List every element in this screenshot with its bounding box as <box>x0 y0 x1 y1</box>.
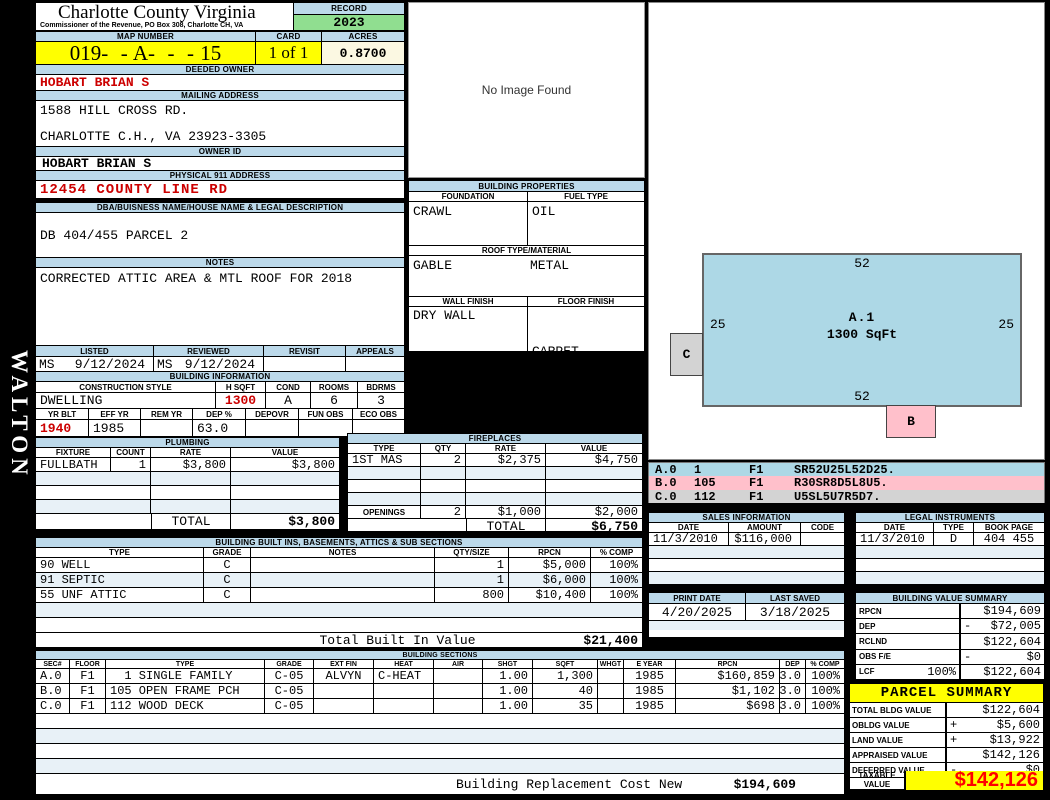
built-ins-total-row: Total Built In Value $21,400 <box>36 633 642 647</box>
sales-label: SALES INFORMATION <box>649 513 844 523</box>
sketch-dim-left: 25 <box>710 317 726 332</box>
sections-col-air: AIR <box>434 660 483 668</box>
plumbing-col-value: VALUE <box>231 448 339 457</box>
bvs-row-rpcn: RPCN $194,609 <box>856 604 1044 619</box>
sales-col-date: DATE <box>649 523 729 532</box>
legal-col-bookpage: BOOK PAGE <box>974 523 1044 532</box>
plumbing-table: PLUMBING FIXTURE COUNT RATE VALUE FULLBA… <box>35 437 340 530</box>
listed-label: LISTED <box>36 346 154 356</box>
plumbing-col-fixture: FIXTURE <box>36 448 111 457</box>
floor-finish-values: CARPET TILE HARDWOOD <box>528 307 644 351</box>
bvs-label: BUILDING VALUE SUMMARY <box>856 593 1044 604</box>
empty-row <box>649 621 844 630</box>
legal-col-type: TYPE <box>934 523 974 532</box>
sidebar-vertical-text: WALTON <box>0 335 32 495</box>
fireplaces-label: FIREPLACES <box>348 434 642 444</box>
fireplaces-total-value: $6,750 <box>546 519 642 533</box>
built-ins-col-notes: NOTES <box>251 548 435 557</box>
fireplaces-total-row: TOTAL $6,750 <box>348 519 642 533</box>
empty-row <box>36 729 844 744</box>
fireplaces-total-label: TOTAL <box>466 519 546 533</box>
fireplaces-col-type: TYPE <box>348 444 421 453</box>
built-ins-row: 90 WELL C 1 $5,000 100% <box>36 558 642 573</box>
sections-col-whgt: WHGT <box>598 660 624 668</box>
owner-id-value: HOBART BRIAN S <box>35 156 405 171</box>
legend-row-a: A.0 1 F1 SR52U25L52D25. <box>649 463 1044 476</box>
built-ins-label: BUILDING BUILT INS, BASEMENTS, ATTICS & … <box>36 538 642 548</box>
yr-blt-value: 1940 <box>36 420 89 436</box>
sales-information-table: SALES INFORMATION DATE AMOUNT CODE 11/3/… <box>648 512 845 584</box>
built-ins-row: 55 UNF ATTIC C 800 $10,400 100% <box>36 588 642 603</box>
empty-row <box>348 467 642 480</box>
building-properties-panel: BUILDING PROPERTIES FOUNDATION FUEL TYPE… <box>408 180 645 352</box>
sections-col-rpcn: RPCN <box>676 660 780 668</box>
construction-style-value: DWELLING <box>36 393 216 408</box>
eff-yr-value: 1985 <box>89 420 141 436</box>
built-ins-col-type: TYPE <box>36 548 204 557</box>
floor-finish-1: CARPET <box>532 344 644 351</box>
map-number-value: 019- - A- - - 15 <box>35 41 256 65</box>
sale-code <box>801 533 844 545</box>
legal-label: LEGAL INSTRUMENTS <box>856 513 1044 523</box>
roof-type-value: GABLE <box>409 256 528 296</box>
fireplaces-col-rate: RATE <box>466 444 546 453</box>
bdrms-value: 3 <box>358 393 404 408</box>
county-title: Charlotte County Virginia <box>36 3 293 22</box>
listed-by: MS <box>39 357 55 371</box>
revisit-cell <box>264 357 346 371</box>
sketch-dim-bottom: 52 <box>704 389 1020 404</box>
built-ins-col-qty-size: QTY/SIZE <box>435 548 509 557</box>
appeals-cell <box>346 357 404 371</box>
parcel-row-obldg: OBLDG VALUE +$5,600 <box>850 718 1043 733</box>
sketch-dim-top: 52 <box>704 256 1020 271</box>
empty-row <box>856 546 1044 559</box>
eff-yr-label: EFF YR <box>89 409 141 419</box>
fireplaces-col-value: VALUE <box>546 444 642 453</box>
dep-pct-label: DEP % <box>193 409 246 419</box>
building-section-row: A.0 F1 1 SINGLE FAMILY C-05 ALVYN C-HEAT… <box>36 669 844 684</box>
print-date-table: PRINT DATE LAST SAVED 4/20/2025 3/18/202… <box>648 592 845 638</box>
fireplaces-table: FIREPLACES TYPE QTY RATE VALUE 1ST MAS 2… <box>347 433 643 532</box>
fun-obs-label: FUN OBS <box>299 409 353 419</box>
fireplaces-row: 1ST MAS 2 $2,375 $4,750 <box>348 454 642 467</box>
sketch-section-c: C <box>670 333 703 376</box>
built-ins-col-rpcn: RPCN <box>509 548 591 557</box>
dba-value: DB 404/455 PARCEL 2 <box>35 212 405 258</box>
rem-yr-value <box>141 420 193 436</box>
building-section-row: C.0 F1 112 WOOD DECK C-05 1.00 35 1985 $… <box>36 699 844 714</box>
reviewed-label: REVIEWED <box>154 346 264 356</box>
sections-col-grade: GRADE <box>265 660 314 668</box>
sales-col-code: CODE <box>801 523 844 532</box>
built-ins-total-value: $21,400 <box>544 633 642 647</box>
empty-row <box>36 603 642 618</box>
built-ins-table: BUILDING BUILT INS, BASEMENTS, ATTICS & … <box>35 537 643 648</box>
physical-address-value: 12454 COUNTY LINE RD <box>35 180 405 199</box>
taxable-value-label: TAXABLE VALUE <box>850 771 906 790</box>
mailing-line2: CHARLOTTE C.H., VA 23923-3305 <box>40 129 400 144</box>
legal-row: 11/3/2010 D 404 455 <box>856 533 1044 546</box>
fireplaces-openings-row: OPENINGS 2 $1,000 $2,000 <box>348 506 642 519</box>
fuel-type-label: FUEL TYPE <box>528 192 644 201</box>
cond-value: A <box>266 393 311 408</box>
built-ins-col-comp: % COMP <box>591 548 642 557</box>
sections-col-sec: SEC# <box>36 660 70 668</box>
sections-col-floor: FLOOR <box>70 660 106 668</box>
empty-row <box>36 714 844 729</box>
legal-date: 11/3/2010 <box>856 533 934 545</box>
sale-date: 11/3/2010 <box>649 533 729 545</box>
fuel-type-value: OIL <box>528 202 644 245</box>
reviewed-date: 9/12/2024 <box>185 357 255 371</box>
acres-value: 0.8700 <box>321 41 405 65</box>
record-year: 2023 <box>293 14 405 31</box>
sketch-area-sqft: 1300 SqFt <box>704 327 1020 342</box>
last-saved-label: LAST SAVED <box>746 593 844 603</box>
rooms-value: 6 <box>311 393 358 408</box>
depovr-value <box>246 420 299 436</box>
reviewed-by: MS <box>157 357 173 371</box>
listed-date: 9/12/2024 <box>75 357 145 371</box>
sketch-dim-right: 25 <box>998 317 1014 332</box>
building-information-table: CONSTRUCTION STYLE H SQFT COND ROOMS BDR… <box>35 381 405 437</box>
depovr-label: DEPOVR <box>246 409 299 419</box>
plumbing-total-label: TOTAL <box>151 514 231 529</box>
review-table: LISTED REVIEWED REVISIT APPEALS MS9/12/2… <box>35 345 405 372</box>
no-image-text: No Image Found <box>482 83 571 97</box>
sections-footer-row: Building Replacement Cost New $194,609 <box>36 774 844 795</box>
empty-row <box>649 572 844 584</box>
roof-material-value: METAL <box>528 256 569 296</box>
sales-row: 11/3/2010 $116,000 <box>649 533 844 546</box>
legal-type: D <box>934 533 974 545</box>
sections-col-sqft: SQFT <box>533 660 598 668</box>
wall-finish-value: DRY WALL <box>409 307 528 351</box>
sections-col-eyear: E YEAR <box>624 660 676 668</box>
legend-row-c: C.0 112 F1 U5SL5U7R5D7. <box>649 490 1044 503</box>
building-value-summary: BUILDING VALUE SUMMARY RPCN $194,609 DEP… <box>855 592 1045 680</box>
empty-row <box>348 493 642 506</box>
reviewed-cell: MS9/12/2024 <box>154 357 264 371</box>
empty-row <box>649 559 844 572</box>
print-date-value: 4/20/2025 <box>649 604 746 620</box>
eco-obs-label: ECO OBS <box>353 409 404 419</box>
bvs-row-lcf: LCF100% $122,604 <box>856 665 1044 679</box>
bdrms-label: BDRMS <box>358 382 404 392</box>
empty-row <box>649 546 844 559</box>
mailing-address-box: 1588 HILL CROSS RD. CHARLOTTE C.H., VA 2… <box>35 100 405 147</box>
parcel-row-appraised: APPRAISED VALUE $142,126 <box>850 748 1043 763</box>
plumbing-label: PLUMBING <box>36 438 339 448</box>
built-ins-total-label: Total Built In Value <box>251 633 544 647</box>
parcel-row-total-bldg: TOTAL BLDG VALUE $122,604 <box>850 703 1043 718</box>
roof-label: ROOF TYPE/MATERIAL <box>409 246 644 256</box>
yr-blt-label: YR BLT <box>36 409 89 419</box>
plumbing-col-rate: RATE <box>151 448 231 457</box>
parcel-summary-label: PARCEL SUMMARY <box>850 684 1043 703</box>
last-saved-value: 3/18/2025 <box>746 604 844 620</box>
notes-value: CORRECTED ATTIC AREA & MTL ROOF FOR 2018 <box>35 267 405 346</box>
replacement-cost-value: $194,609 <box>734 777 844 792</box>
building-sections-label: BUILDING SECTIONS <box>36 651 844 660</box>
legend-row-b: B.0 105 F1 R30SR8D5L8U5. <box>649 476 1044 490</box>
parcel-summary: PARCEL SUMMARY TOTAL BLDG VALUE $122,604… <box>848 682 1045 791</box>
empty-row <box>36 500 339 514</box>
plumbing-col-count: COUNT <box>111 448 151 457</box>
replacement-cost-label: Building Replacement Cost New <box>456 777 682 792</box>
legal-col-date: DATE <box>856 523 934 532</box>
foundation-value: CRAWL <box>409 202 528 245</box>
construction-style-label: CONSTRUCTION STYLE <box>36 382 216 392</box>
sketch-section-a: 52 A.1 1300 SqFt 25 25 52 <box>702 253 1022 407</box>
county-header: Charlotte County Virginia Commissioner o… <box>35 2 293 31</box>
fireplaces-col-qty: QTY <box>421 444 466 453</box>
sections-col-shgt: SHGT <box>483 660 533 668</box>
fun-obs-value <box>299 420 353 436</box>
empty-row <box>348 480 642 493</box>
bvs-row-rclnd: RCLND $122,604 <box>856 634 1044 649</box>
bvs-row-obs: OBS F/E -$0 <box>856 650 1044 665</box>
building-section-row: B.0 F1 105 OPEN FRAME PCH C-05 1.00 40 1… <box>36 684 844 699</box>
parcel-row-land: LAND VALUE +$13,922 <box>850 733 1043 748</box>
revisit-label: REVISIT <box>264 346 346 356</box>
building-sections-table: BUILDING SECTIONS SEC# FLOOR TYPE GRADE … <box>35 650 845 795</box>
legal-bookpage: 404 455 <box>974 533 1044 545</box>
built-ins-row: 91 SEPTIC C 1 $6,000 100% <box>36 573 642 588</box>
empty-row <box>856 559 1044 572</box>
sections-col-dep: DEP <box>780 660 806 668</box>
print-date-label: PRINT DATE <box>649 593 746 603</box>
cond-label: COND <box>266 382 311 392</box>
rem-yr-label: REM YR <box>141 409 193 419</box>
plumbing-total-row: TOTAL $3,800 <box>36 514 339 529</box>
sketch-area-label: A.1 <box>704 310 1020 325</box>
mailing-line1: 1588 HILL CROSS RD. <box>40 103 400 118</box>
property-record-card: WALTON Charlotte County Virginia Commiss… <box>0 0 1050 800</box>
sketch-section-b: B <box>886 405 936 438</box>
empty-row <box>36 744 844 759</box>
building-properties-label: BUILDING PROPERTIES <box>409 181 644 192</box>
empty-row <box>36 759 844 774</box>
sections-col-type: TYPE <box>106 660 265 668</box>
empty-row <box>36 618 642 633</box>
foundation-label: FOUNDATION <box>409 192 528 201</box>
floor-finish-label: FLOOR FINISH <box>528 297 644 306</box>
taxable-value-amount: $142,126 <box>906 771 1043 790</box>
bvs-row-dep: DEP -$72,005 <box>856 619 1044 634</box>
h-sqft-value: 1300 <box>216 393 266 408</box>
sketch-panel: 52 A.1 1300 SqFt 25 25 52 C B <box>648 2 1045 460</box>
empty-row <box>36 486 339 500</box>
plumbing-total-value: $3,800 <box>231 514 339 529</box>
legal-instruments-table: LEGAL INSTRUMENTS DATE TYPE BOOK PAGE 11… <box>855 512 1045 584</box>
sections-col-extfin: EXT FIN <box>314 660 374 668</box>
empty-row <box>36 472 339 486</box>
sections-col-comp: % COMP <box>806 660 844 668</box>
sections-col-heat: HEAT <box>374 660 434 668</box>
roof-values: GABLE METAL <box>409 256 644 297</box>
listed-cell: MS9/12/2024 <box>36 357 154 371</box>
built-ins-col-grade: GRADE <box>204 548 251 557</box>
rooms-label: ROOMS <box>311 382 358 392</box>
wall-finish-label: WALL FINISH <box>409 297 528 306</box>
deeded-owner-value: HOBART BRIAN S <box>35 74 405 91</box>
sketch-legend: A.0 1 F1 SR52U25L52D25. B.0 105 F1 R30SR… <box>648 462 1045 503</box>
sales-col-amount: AMOUNT <box>729 523 801 532</box>
photo-panel: No Image Found <box>408 2 645 178</box>
appeals-label: APPEALS <box>346 346 404 356</box>
county-subtitle: Commissioner of the Revenue, PO Box 308,… <box>36 22 293 29</box>
dep-pct-value: 63.0 <box>193 420 246 436</box>
plumbing-row: FULLBATH 1 $3,800 $3,800 <box>36 458 339 472</box>
h-sqft-label: H SQFT <box>216 382 266 392</box>
empty-row <box>856 572 1044 584</box>
card-value: 1 of 1 <box>255 41 322 65</box>
sale-amount: $116,000 <box>729 533 801 545</box>
taxable-value-row: TAXABLE VALUE $142,126 <box>850 771 1043 790</box>
